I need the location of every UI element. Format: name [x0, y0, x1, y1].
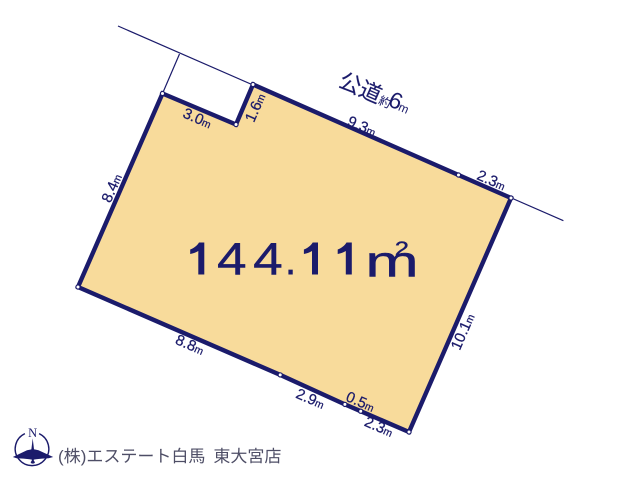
svg-text:N: N — [28, 426, 37, 440]
svg-text:4: 4 — [253, 234, 283, 285]
svg-text:4: 4 — [217, 234, 247, 285]
svg-text:m: m — [365, 237, 419, 286]
svg-text:.: . — [284, 234, 297, 285]
svg-text:2: 2 — [395, 237, 409, 260]
svg-text:(: ( — [58, 447, 64, 466]
svg-text:): ) — [81, 447, 87, 466]
